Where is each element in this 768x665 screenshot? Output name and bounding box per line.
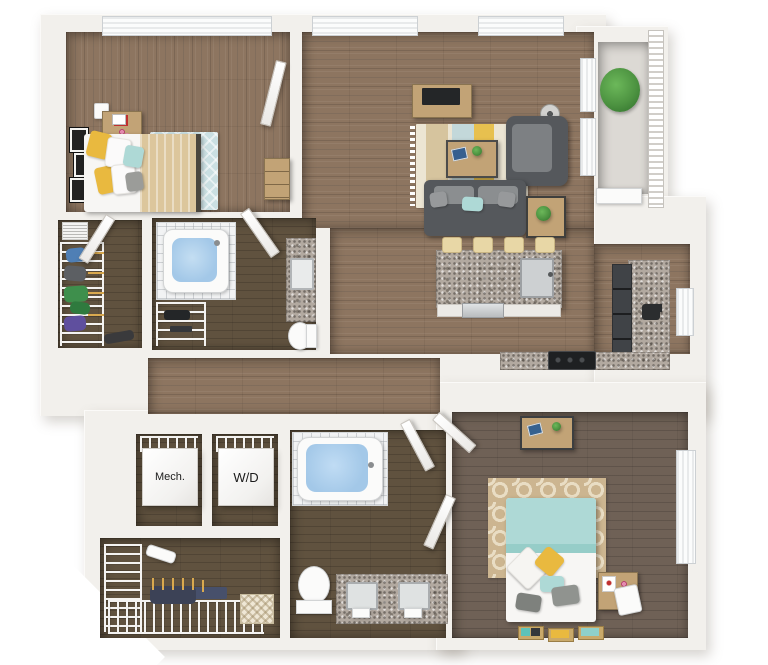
closet2-hangers bbox=[152, 578, 154, 590]
bar-stool-2 bbox=[473, 237, 493, 253]
armchair-cushion bbox=[512, 124, 552, 172]
closet1-garment-green bbox=[63, 285, 88, 303]
bar-stool-1 bbox=[442, 237, 462, 253]
bathroom1-linen-shelves bbox=[156, 302, 206, 346]
pillow-teal bbox=[122, 145, 144, 169]
bedroom1-blanket bbox=[140, 134, 196, 212]
bedroom1-window bbox=[102, 16, 272, 36]
mech-label: Mech. bbox=[155, 472, 185, 483]
closet1-air-vent bbox=[62, 222, 88, 240]
closet1-garment-green2 bbox=[69, 301, 90, 315]
washer-dryer-unit: W/D bbox=[218, 448, 274, 506]
bar-stool-4 bbox=[535, 237, 555, 253]
bathroom1-sink bbox=[290, 258, 314, 290]
range-cooktop bbox=[548, 351, 596, 370]
balcony-window-upper bbox=[580, 58, 596, 112]
nightstand-red-book bbox=[112, 114, 126, 125]
bedroom2-desk-plant bbox=[552, 422, 561, 431]
rug-fringe bbox=[410, 126, 415, 206]
bathroom1-tub-faucet bbox=[214, 240, 220, 246]
sofa-pillow-teal bbox=[462, 196, 484, 211]
living-window-left bbox=[312, 16, 418, 36]
dishwasher bbox=[462, 303, 504, 318]
bedroom2-window bbox=[676, 450, 696, 564]
bedroom2-blanket-teal bbox=[506, 498, 596, 544]
side-table-plant bbox=[536, 206, 551, 221]
bathroom2-sink-left bbox=[346, 582, 378, 610]
linen-shelf-items bbox=[164, 310, 190, 320]
bathroom2-faucet-left bbox=[352, 608, 370, 618]
tv bbox=[422, 88, 460, 105]
bathroom1-toilet-tank bbox=[306, 324, 317, 348]
bar-stool-3 bbox=[504, 237, 524, 253]
balcony-window-lower bbox=[580, 118, 596, 176]
island-sink bbox=[520, 258, 554, 298]
closet2-garments bbox=[150, 586, 196, 604]
balcony-door bbox=[596, 188, 642, 204]
bathroom2-faucet-right bbox=[404, 608, 422, 618]
kitchen-cabinets-dark bbox=[612, 264, 632, 366]
bathroom2-tub-faucet bbox=[368, 462, 374, 468]
bathroom2-toilet-tank bbox=[296, 600, 332, 614]
bathroom2-toilet-bowl bbox=[298, 566, 330, 604]
kitchen-window bbox=[676, 288, 694, 336]
closet1-garment-purple bbox=[63, 315, 86, 332]
sofa-pillow-gray-right bbox=[497, 191, 516, 208]
island-faucet bbox=[548, 272, 553, 277]
bedroom2-pillow-gray-2 bbox=[515, 592, 542, 613]
balcony-floor bbox=[598, 42, 650, 194]
tray-middle-mat bbox=[551, 630, 569, 638]
mech-unit: Mech. bbox=[142, 448, 198, 506]
floor-plan: Mech. W/D bbox=[0, 0, 768, 665]
tray-left-mat bbox=[521, 628, 530, 636]
sofa-pillow-gray-left bbox=[429, 191, 448, 208]
hallway-floor bbox=[148, 358, 440, 414]
closet1-garment-gray bbox=[63, 265, 86, 282]
pillow-gray bbox=[125, 171, 144, 192]
tray-right-mat bbox=[581, 628, 599, 636]
bedroom1-dresser bbox=[264, 158, 290, 200]
bathroom2-tub-water bbox=[306, 444, 368, 492]
bathroom2-sink-right bbox=[398, 582, 430, 610]
bedroom1-footboard bbox=[196, 134, 201, 212]
coffee-table-plant bbox=[472, 146, 482, 156]
coffee-maker bbox=[642, 304, 660, 320]
balcony-railing bbox=[648, 30, 664, 208]
bathroom1-tub-water bbox=[172, 238, 217, 282]
bedroom2-pillow-gray-1 bbox=[551, 584, 580, 607]
balcony-plant bbox=[600, 68, 640, 112]
wd-label: W/D bbox=[233, 471, 258, 484]
living-window-right bbox=[478, 16, 564, 36]
closet2-basket bbox=[240, 594, 274, 624]
